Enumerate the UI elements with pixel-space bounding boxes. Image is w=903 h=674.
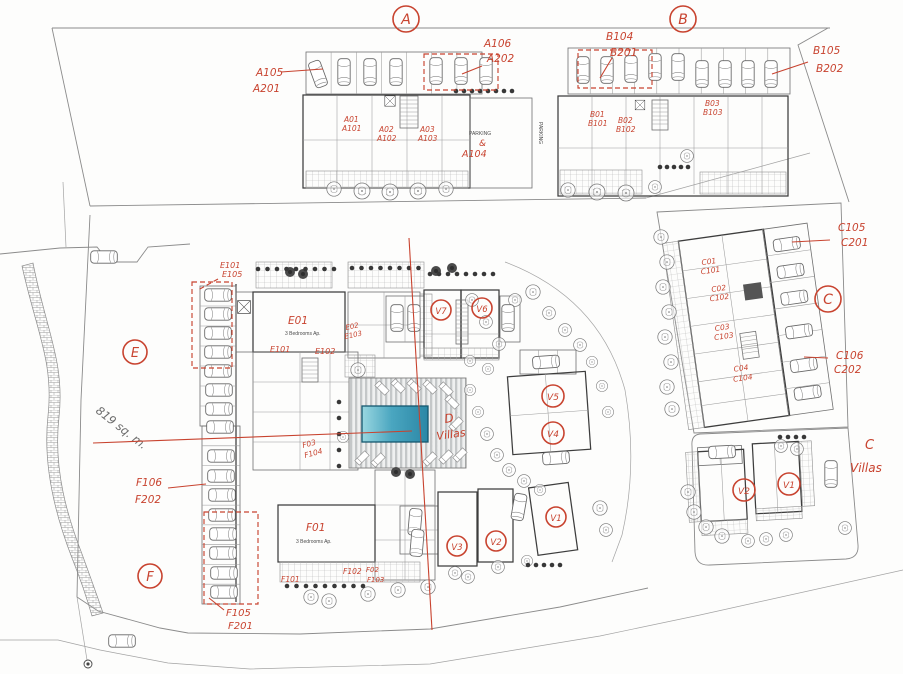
tree-icon (600, 524, 613, 537)
road-bottom-outer (0, 570, 903, 669)
car-icon (696, 61, 708, 88)
car-icon (205, 289, 232, 301)
e-balcony-strip (420, 294, 432, 356)
car-icon (532, 355, 559, 369)
label-c105: C105 (838, 222, 866, 234)
car-icon (542, 451, 569, 465)
bush-icon (361, 584, 366, 589)
bush-icon (322, 267, 327, 272)
bush-icon (332, 584, 337, 589)
bush-icon (342, 584, 347, 589)
block-b-letter: B (678, 12, 688, 28)
bush-icon (462, 89, 467, 94)
label-f103: F103 (367, 576, 384, 584)
label-a103: A103 (417, 134, 438, 143)
tree-icon (561, 183, 575, 197)
label-a106: A106 (483, 38, 512, 50)
tree-icon (472, 406, 483, 417)
car-icon (211, 567, 238, 579)
car-icon (210, 528, 237, 540)
label-c202: C202 (834, 364, 862, 376)
cv-patio-4 (756, 506, 803, 520)
v7-v6-stair (456, 300, 468, 344)
bush-icon (542, 563, 547, 568)
f01-apartment (278, 505, 375, 562)
tree-icon (410, 183, 426, 199)
car-icon (208, 470, 235, 482)
site-plan-svg: C01 C101 C02 C102 C03 C103 C04 C104 (0, 0, 903, 674)
tree-icon (449, 567, 462, 580)
block-c-letter: C (823, 292, 833, 308)
label-f101: F101 (281, 575, 300, 584)
tree-icon (482, 363, 493, 374)
bush-icon (437, 272, 442, 277)
bush-icon (304, 584, 309, 589)
block-a-letter: A (400, 12, 411, 28)
car-icon (390, 59, 402, 86)
bush-icon (337, 400, 342, 405)
bush-icon (256, 267, 261, 272)
tree-icon (304, 590, 318, 604)
v4: V4 (547, 430, 559, 440)
tree-icon (589, 184, 605, 200)
tree-icon (526, 285, 540, 299)
survey-leader (77, 597, 87, 660)
dark-tree-icon (447, 263, 457, 273)
bush-icon (265, 267, 270, 272)
elevator-icon (238, 301, 251, 314)
bush-icon (665, 165, 670, 170)
bush-icon (323, 584, 328, 589)
label-e105-p: E105 (222, 270, 242, 279)
car-icon (308, 59, 329, 88)
tree-icon (491, 449, 504, 462)
bush-icon (534, 563, 539, 568)
label-b102: B102 (616, 125, 636, 134)
tree-icon (681, 150, 694, 163)
car-icon (211, 586, 238, 598)
tree-icon (664, 355, 678, 369)
label-e102: E102 (315, 347, 335, 356)
label-e101: E101 (270, 345, 290, 354)
tree-icon (559, 324, 572, 337)
car-icon (338, 59, 350, 86)
bush-icon (351, 584, 356, 589)
label-b104: B104 (606, 31, 633, 43)
label-b103: B103 (703, 108, 723, 117)
label-c101: C101 (700, 265, 721, 277)
car-icon (206, 384, 233, 396)
label-c201: C201 (841, 237, 868, 249)
tree-icon (391, 583, 405, 597)
tree-icon (658, 330, 672, 344)
bush-icon (359, 266, 364, 271)
car-icon (777, 263, 805, 279)
tree-icon (574, 339, 587, 352)
bush-icon (786, 435, 791, 440)
label-f02: F02 (366, 566, 379, 574)
tree-icon (760, 533, 773, 546)
car-icon (209, 509, 236, 521)
bush-icon (275, 267, 280, 272)
v1: V1 (550, 514, 561, 524)
block-c-stair-treads (740, 335, 758, 353)
bush-icon (526, 563, 531, 568)
label-f105: F105 (226, 608, 251, 619)
block-c-unit-labels: C01 C101 C02 C102 C03 C103 C04 C104 (699, 253, 753, 386)
tree-icon (681, 485, 695, 499)
label-b03: B03 (705, 99, 720, 108)
label-b02: B02 (618, 116, 633, 125)
tree-icon (503, 464, 516, 477)
label-e01-type: 3 Bedrooms Ap. (285, 331, 321, 337)
bush-icon (686, 165, 691, 170)
bush-icon (464, 272, 469, 277)
label-c-villas-1: C (865, 438, 875, 453)
car-icon (109, 635, 136, 647)
tree-icon (699, 520, 713, 534)
label-c106: C106 (836, 350, 864, 362)
bush-icon (337, 416, 342, 421)
tree-icon (660, 255, 674, 269)
bush-icon (679, 165, 684, 170)
tree-icon (534, 484, 545, 495)
tree-icon (665, 402, 679, 416)
label-e101-p: E101 (220, 261, 240, 270)
bush-icon (428, 272, 433, 277)
tree-icon (654, 230, 668, 244)
leader-f106 (168, 484, 206, 488)
tree-icon (649, 181, 662, 194)
elevator-icon (635, 100, 645, 110)
bush-icon (470, 89, 475, 94)
tree-icon (351, 363, 365, 377)
block-a-stair-treads (400, 100, 418, 124)
car-icon (790, 357, 818, 373)
tree-icon (493, 338, 506, 351)
bush-icon (294, 267, 299, 272)
tree-icon (742, 535, 755, 548)
bush-icon (284, 267, 289, 272)
label-c103: C103 (713, 330, 734, 342)
bush-icon (350, 266, 355, 271)
tree-icon (464, 384, 475, 395)
car-icon (207, 421, 234, 433)
car-icon (208, 450, 235, 462)
label-b01: B01 (590, 110, 605, 119)
car-icon (625, 56, 637, 83)
car-icon (410, 529, 425, 557)
block-c-core (743, 282, 763, 300)
boundary-left (77, 215, 90, 597)
car-icon (210, 547, 237, 559)
leader-e101 (198, 279, 218, 290)
label-a03: A03 (419, 125, 435, 134)
tree-icon (322, 594, 336, 608)
car-icon (209, 489, 236, 501)
label-a101: A101 (341, 124, 361, 133)
car-icon (391, 305, 403, 332)
e-garden-right (348, 262, 424, 288)
car-icon (773, 236, 801, 252)
bush-icon (337, 448, 342, 453)
bush-icon (502, 89, 507, 94)
bush-icon (285, 584, 290, 589)
block-f-letter: F (146, 570, 154, 585)
label-b202: B202 (816, 63, 844, 75)
survey-point-inner (86, 662, 89, 665)
tree-icon (839, 522, 852, 535)
tree-icon (656, 280, 670, 294)
car-icon (364, 59, 376, 86)
v6: V6 (476, 305, 488, 315)
bush-icon (473, 272, 478, 277)
bush-icon (369, 266, 374, 271)
bush-icon (416, 266, 421, 271)
block-e-letter: E (131, 346, 140, 361)
label-f106: F106 (136, 477, 162, 489)
car-icon (765, 61, 777, 88)
label-a01: A01 (343, 115, 359, 124)
tree-icon (602, 406, 613, 417)
tree-icon (618, 185, 634, 201)
villa-v5-v4 (507, 371, 590, 454)
bush-icon (802, 435, 807, 440)
v3: V3 (451, 543, 462, 553)
tree-icon (481, 428, 494, 441)
car-icon (205, 365, 232, 377)
car-icon (206, 403, 233, 415)
label-a-amp: & (479, 139, 486, 149)
label-f01: F01 (306, 522, 325, 534)
label-e01: E01 (288, 315, 308, 327)
tree-icon (421, 580, 435, 594)
dark-tree-icon (405, 469, 415, 479)
bush-icon (294, 584, 299, 589)
bush-icon (454, 89, 459, 94)
tree-icon (593, 501, 607, 515)
car-icon (205, 327, 232, 339)
tree-icon (518, 475, 531, 488)
car-icon (742, 61, 754, 88)
label-area: 819 sq. m. (93, 403, 150, 452)
bush-icon (550, 563, 555, 568)
bush-icon (491, 272, 496, 277)
bush-icon (332, 267, 337, 272)
v2: V2 (490, 538, 501, 548)
label-parking-a: PARKING (469, 131, 491, 137)
car-icon (649, 54, 661, 81)
road-below-ab (90, 198, 646, 206)
swimming-pool (362, 406, 428, 442)
tree-icon (596, 380, 607, 391)
label-f01-type: 3 Bedrooms Ap. (296, 539, 332, 545)
label-parking-side: PARKING (537, 122, 543, 144)
label-c-villas-2: Villas (850, 461, 882, 475)
label-f102: F102 (343, 567, 362, 576)
tree-icon (687, 505, 701, 519)
bush-icon (378, 266, 383, 271)
road-left-stub (63, 182, 66, 247)
tree-icon (660, 380, 674, 394)
dark-tree-icon (391, 467, 401, 477)
label-c104: C104 (732, 372, 753, 384)
tree-icon (462, 571, 475, 584)
bush-icon (658, 165, 663, 170)
label-b105: B105 (813, 45, 841, 57)
car-icon (785, 323, 813, 339)
block-c-parking-stalls (763, 223, 834, 415)
bush-icon (446, 272, 451, 277)
car-icon (825, 461, 837, 488)
bush-icon (494, 89, 499, 94)
label-f201: F201 (228, 621, 253, 632)
villa-v3 (438, 492, 477, 566)
car-icon (601, 57, 613, 84)
site-plan-drawing: C01 C101 C02 C102 C03 C103 C04 C104 (0, 0, 903, 674)
bush-icon (778, 435, 783, 440)
label-d-villas-1: D (443, 411, 454, 426)
tree-icon (464, 355, 475, 366)
label-a104: A104 (461, 149, 487, 160)
block-b-patio-right (700, 172, 786, 194)
cv-v2: V2 (738, 487, 750, 497)
label-a105: A105 (255, 67, 284, 79)
tree-icon (780, 529, 793, 542)
label-a02: A02 (378, 125, 394, 134)
car-icon (708, 445, 735, 459)
tree-icon (382, 184, 398, 200)
bush-icon (455, 272, 460, 277)
block-c-cars (773, 236, 822, 400)
block-c: C01 C101 C02 C102 C03 C103 C04 C104 (662, 223, 833, 429)
label-f202: F202 (135, 494, 161, 506)
label-b201: B201 (610, 47, 637, 59)
car-icon (455, 58, 467, 85)
bush-icon (482, 272, 487, 277)
cv-v1: V1 (783, 481, 795, 491)
parking-row-outline (763, 223, 834, 415)
car-icon (430, 58, 442, 85)
car-icon (780, 290, 808, 306)
tree-icon (715, 529, 729, 543)
landscape-strip (22, 263, 103, 616)
car-icon (719, 61, 731, 88)
tree-icon (492, 561, 505, 574)
v7-v6-patio (424, 348, 499, 360)
bush-icon (388, 266, 393, 271)
v7: V7 (435, 307, 447, 317)
label-a102: A102 (376, 134, 397, 143)
car-icon (577, 57, 589, 84)
complex-stair-1-treads (302, 362, 318, 378)
car-icon (502, 305, 514, 332)
bush-icon (478, 89, 483, 94)
tree-icon (361, 587, 375, 601)
label-c102: C102 (709, 292, 730, 304)
boundary-upper-left (52, 28, 90, 206)
v5-v4-partitions (507, 371, 590, 454)
tree-icon (439, 182, 453, 196)
car-icon (91, 251, 118, 263)
tree-icon (662, 305, 676, 319)
v5: V5 (547, 393, 559, 403)
bush-icon (672, 165, 677, 170)
tree-icon (543, 307, 556, 320)
bush-icon (337, 464, 342, 469)
tree-icon (586, 356, 597, 367)
bush-icon (313, 584, 318, 589)
tree-icon (791, 443, 804, 456)
bush-icon (510, 89, 515, 94)
bush-icon (303, 267, 308, 272)
bush-icon (313, 267, 318, 272)
bush-icon (397, 266, 402, 271)
bush-icon (558, 563, 563, 568)
car-icon (205, 346, 232, 358)
bush-icon (486, 89, 491, 94)
elevator-icon (385, 96, 395, 106)
label-a201: A201 (252, 83, 280, 95)
tree-icon (354, 183, 370, 199)
tree-icon (775, 440, 788, 453)
label-b101: B101 (588, 119, 607, 128)
car-icon (205, 308, 232, 320)
bush-icon (794, 435, 799, 440)
label-a202: A202 (486, 53, 515, 65)
car-icon (672, 54, 684, 81)
tree-icon (327, 182, 341, 196)
